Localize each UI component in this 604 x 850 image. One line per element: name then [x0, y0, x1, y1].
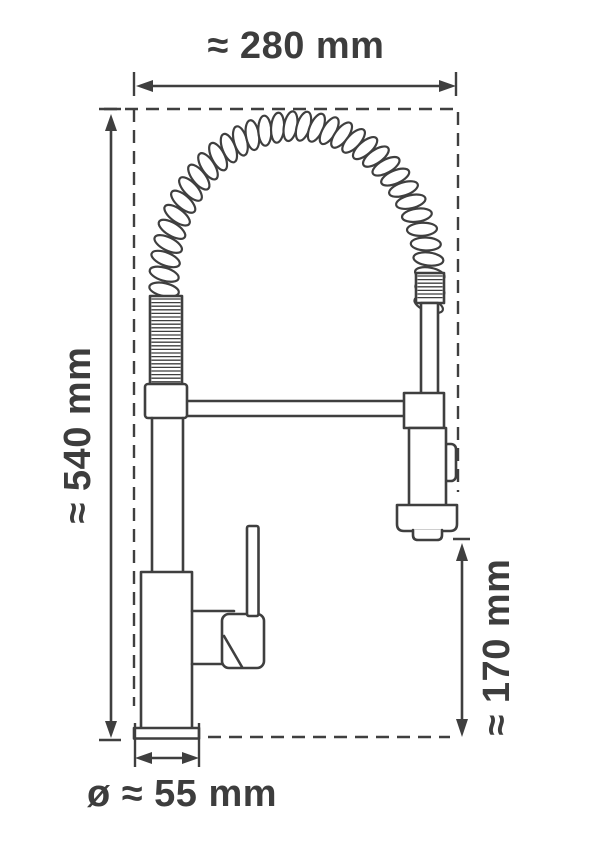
spray-hose-pipe: [421, 303, 438, 394]
arrowhead-up-icon: [456, 543, 468, 561]
spray-head: [397, 428, 457, 540]
arrowhead-right-icon: [182, 752, 199, 764]
faucet-body-column: [141, 572, 192, 730]
riser-pipe: [152, 418, 183, 574]
spring-sleeve: [150, 296, 182, 386]
base-flange: [134, 728, 199, 739]
arrowhead-up-icon: [105, 114, 117, 131]
handle-lever: [247, 526, 259, 616]
spray-head-body: [409, 428, 446, 506]
faucet-body-drawing: [134, 110, 457, 739]
spray-head-connector: [404, 393, 444, 428]
hose-end-fitting: [416, 273, 444, 303]
spray-head-flare: [397, 505, 457, 531]
clearance-dimension-arrow: [453, 539, 470, 737]
dimension-label-spray-clearance: ≈ 170 mm: [475, 517, 519, 777]
spout-collar: [145, 384, 187, 418]
fitting-hatching: [418, 276, 443, 298]
faucet-dimension-diagram: ≈ 280 mm ≈ 540 mm ≈ 170 mm ø ≈ 55 mm: [0, 0, 604, 850]
arrowhead-left-icon: [135, 752, 152, 764]
arrowhead-right-icon: [439, 80, 456, 92]
spring-hose-arch: [148, 110, 446, 316]
dimension-label-overall-height: ≈ 540 mm: [56, 295, 100, 575]
arrowhead-left-icon: [136, 80, 153, 92]
arrowhead-down-icon: [105, 721, 117, 738]
height-dimension-arrow: [99, 109, 121, 740]
dimension-label-overall-width: ≈ 280 mm: [146, 24, 446, 68]
support-crossbar: [186, 401, 408, 416]
width-dimension-arrow: [134, 72, 456, 96]
spray-nozzle: [413, 530, 442, 540]
arrowhead-down-icon: [456, 719, 468, 737]
dimension-label-base-diameter: ø ≈ 55 mm: [32, 772, 332, 816]
